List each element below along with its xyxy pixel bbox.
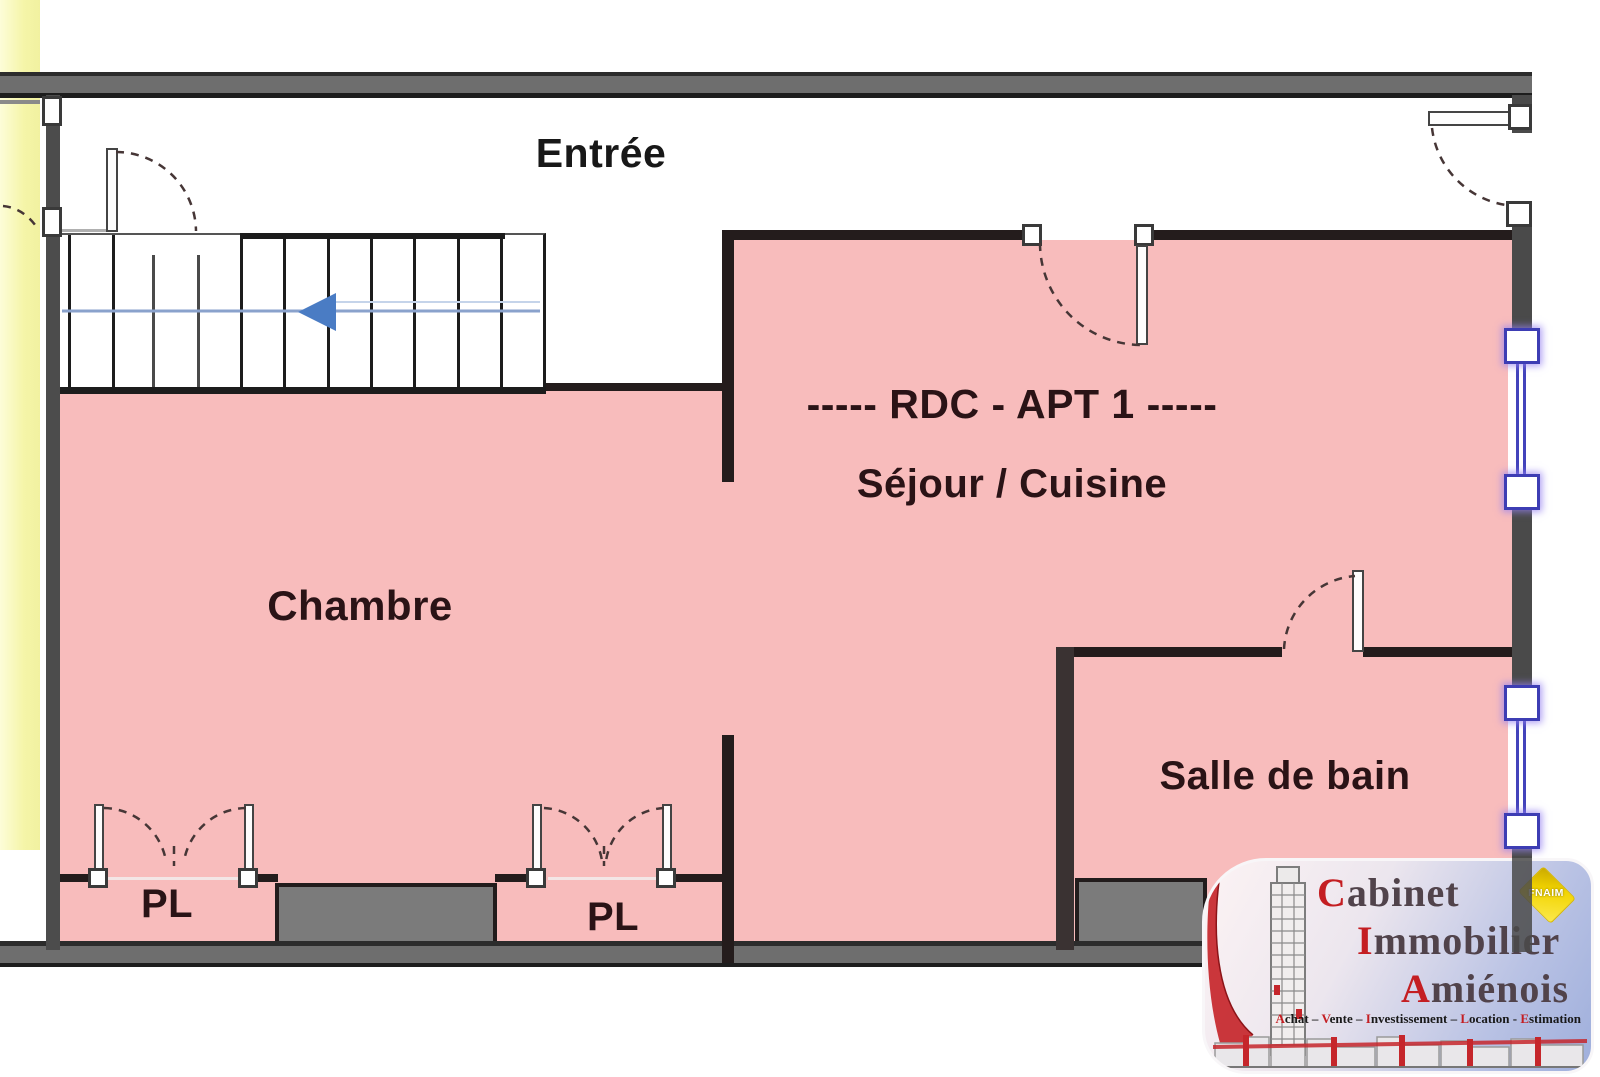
sejour-top-wall: [722, 230, 1026, 240]
plan-title: ----- RDC - APT 1 -----: [762, 384, 1262, 425]
window-glass-line: [1516, 350, 1526, 490]
closet-block: [1075, 878, 1207, 950]
entrance-door-post: [1506, 201, 1532, 227]
chambre-sejour-divider-wall: [722, 735, 734, 963]
closet2-door-leaf: [532, 804, 542, 872]
sejour-door-post: [1022, 224, 1042, 246]
room-label-salle-de-bain: Salle de bain: [1110, 756, 1460, 796]
sejour-door-leaf: [1136, 245, 1148, 345]
window-frame-post: [1504, 474, 1540, 510]
chambre-sejour-divider-wall: [722, 230, 734, 482]
window-frame-post: [1504, 685, 1540, 721]
closet1-door-leaf: [94, 804, 104, 872]
bathroom-left-wall: [1056, 647, 1074, 950]
agency-logo-card: Cabinet Immobilier Amiénois Achat – Vent…: [1202, 858, 1594, 1074]
stairwell-door-leaf: [106, 148, 118, 232]
closet1-door-post: [88, 868, 108, 888]
floorplan-canvas: Entrée ----- RDC - APT 1 ----- Séjour / …: [0, 0, 1600, 1077]
room-label-placard-2: PL: [573, 897, 653, 937]
staircase: [60, 233, 546, 394]
agency-tagline: Achat – Vente – Investissement – Locatio…: [1275, 1011, 1581, 1027]
room-label-chambre: Chambre: [240, 585, 480, 627]
entrance-door-post: [1508, 104, 1532, 130]
stair-door-threshold: [60, 229, 108, 232]
room-label-placard-1: PL: [127, 884, 207, 924]
room-label-sejour-cuisine: Séjour / Cuisine: [762, 464, 1262, 504]
room-sejour-cuisine-area: [722, 240, 1512, 941]
closet2-door-post: [656, 868, 676, 888]
bathroom-top-wall: [1056, 647, 1282, 657]
brand-line-amienois: Amiénois: [1401, 969, 1569, 1009]
city-skyline-graphic: [1213, 1029, 1587, 1069]
closet-block: [275, 883, 497, 948]
bathroom-door-leaf: [1352, 570, 1364, 652]
brand-line-cabinet: Cabinet: [1317, 873, 1460, 913]
wall-post: [42, 207, 62, 237]
closet1-door-post: [238, 868, 258, 888]
window-frame-post: [1504, 813, 1540, 849]
closet-wall: [676, 874, 728, 882]
window-frame-post: [1504, 328, 1540, 364]
adjacent-unit-wall-line: [0, 100, 40, 104]
exterior-right-wall-over-logo: [1512, 856, 1532, 952]
chambre-top-wall: [543, 383, 734, 391]
closet-door-threshold: [548, 877, 662, 880]
closet2-door-leaf: [662, 804, 672, 872]
closet-door-threshold: [108, 877, 238, 880]
closet2-door-post: [526, 868, 546, 888]
sejour-door-post: [1134, 224, 1154, 246]
adjacent-unit-area: [0, 0, 40, 850]
closet1-door-leaf: [244, 804, 254, 872]
bathroom-top-wall: [1363, 647, 1512, 657]
exterior-top-wall: [0, 72, 1532, 98]
wall-post: [42, 96, 62, 126]
room-label-entree: Entrée: [501, 133, 701, 174]
room-chambre-area: [60, 391, 722, 941]
entrance-door-leaf: [1428, 111, 1512, 126]
sejour-top-wall: [1144, 230, 1512, 240]
